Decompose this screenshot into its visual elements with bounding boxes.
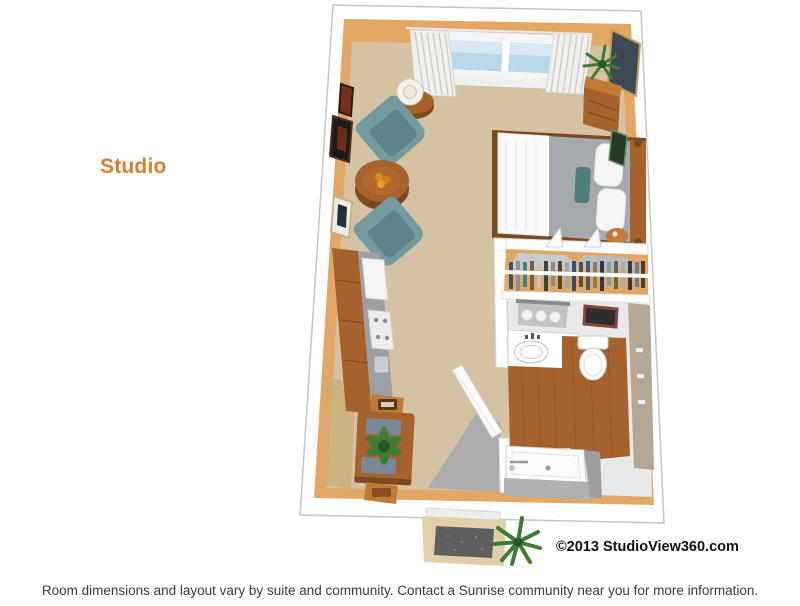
media-chest — [583, 76, 622, 134]
picture-frame — [339, 84, 353, 116]
coffee-table — [355, 160, 409, 210]
tub-shower — [504, 446, 602, 500]
pillow — [596, 188, 627, 232]
sink — [514, 341, 548, 363]
bathroom — [504, 299, 654, 500]
headboard — [630, 140, 646, 245]
placemat — [361, 457, 397, 475]
entry — [422, 508, 540, 566]
copyright-text: ©2013 StudioView360.com — [556, 539, 739, 555]
vanity-lights — [516, 299, 570, 328]
floorplan-page: Studio — [0, 0, 800, 606]
floorplan-rendering — [0, 0, 800, 606]
toilet — [578, 336, 608, 380]
kitchen-sink — [374, 356, 389, 373]
closet — [502, 249, 650, 303]
accent-pillow — [574, 167, 591, 204]
door-mat — [434, 526, 494, 558]
window — [406, 28, 592, 96]
bathroom-art — [584, 306, 617, 327]
green-framed-art — [609, 130, 627, 166]
refrigerator — [362, 258, 388, 300]
footer-disclaimer: Room dimensions and layout vary by suite… — [0, 583, 800, 598]
stove — [368, 310, 394, 350]
nightstand — [606, 228, 628, 244]
